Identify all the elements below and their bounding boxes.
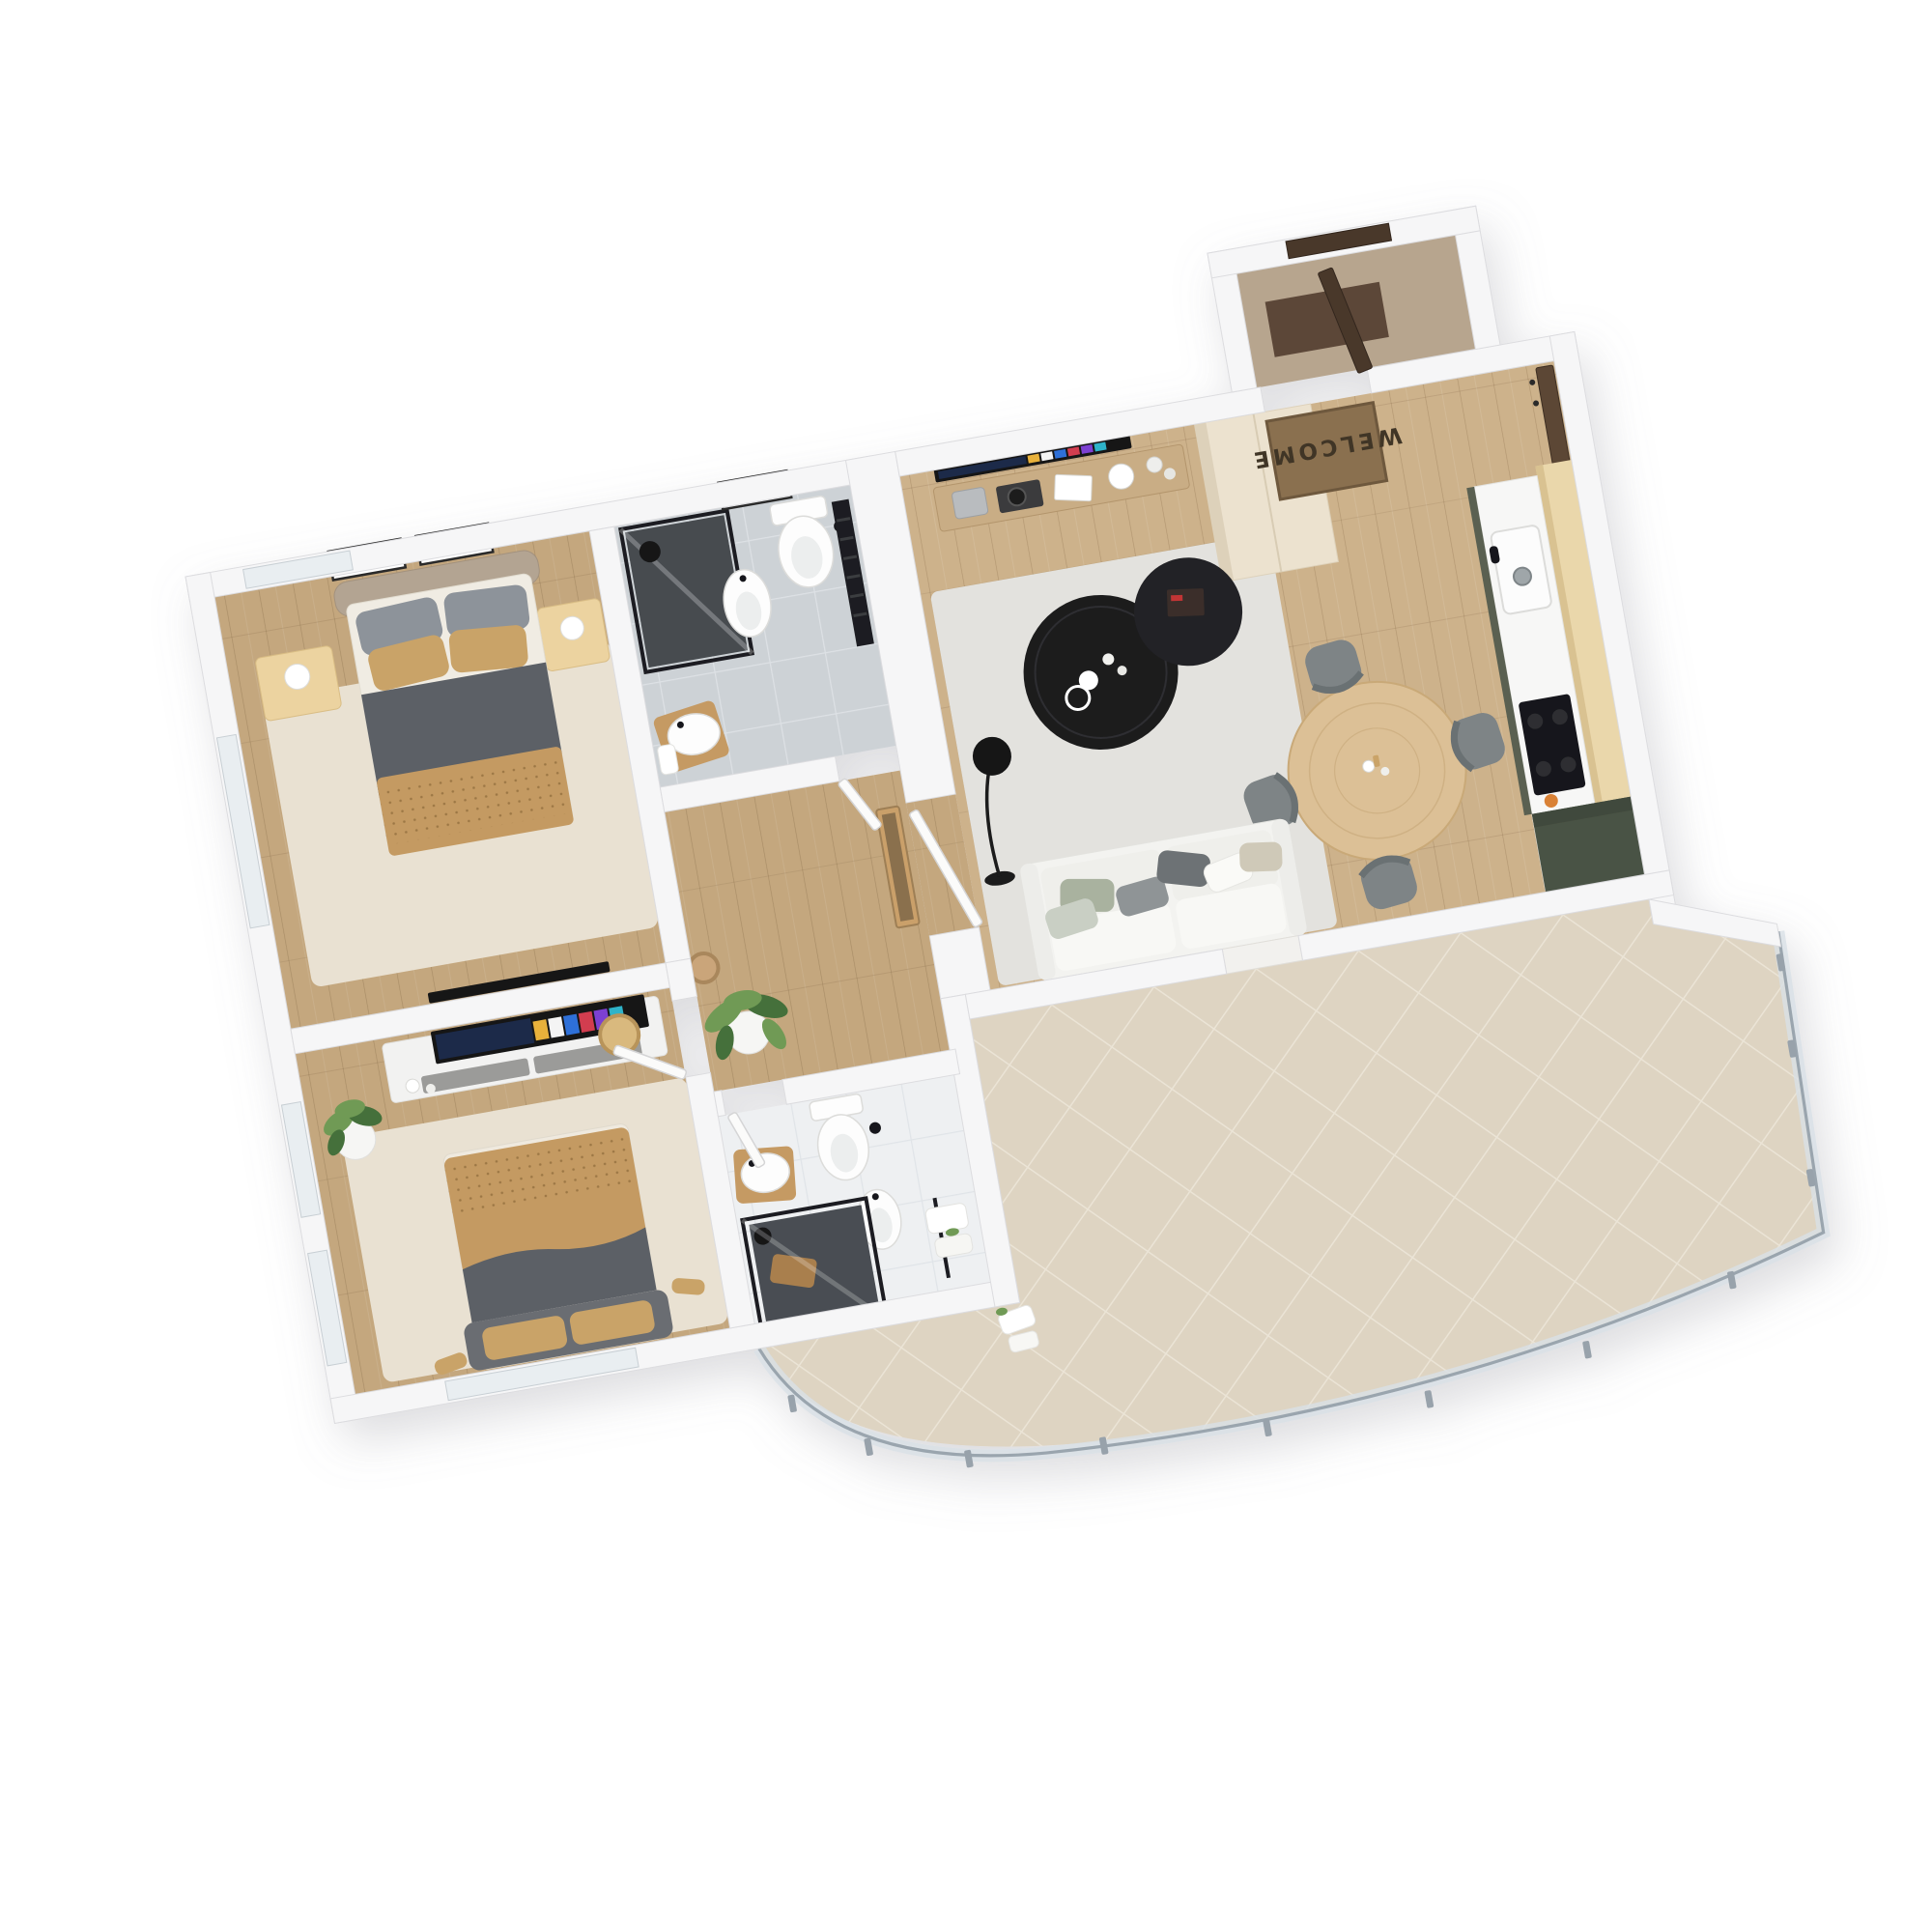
pillow-beige <box>1239 841 1283 872</box>
floor-plan-image: WELCOME <box>0 0 1932 1932</box>
speaker <box>952 487 988 519</box>
floor-plan-page: WELCOME <box>0 0 1932 1932</box>
washbasin-stool <box>727 1140 802 1210</box>
pillow-dark <box>1156 849 1211 887</box>
apartment-render: WELCOME <box>161 176 1850 1595</box>
hall-floor <box>665 771 950 1093</box>
shower-stool <box>769 1254 817 1289</box>
decor-book <box>1167 588 1205 616</box>
pillow-tan-right <box>448 624 529 673</box>
magazines <box>1055 474 1093 500</box>
slipper-right <box>671 1278 705 1295</box>
